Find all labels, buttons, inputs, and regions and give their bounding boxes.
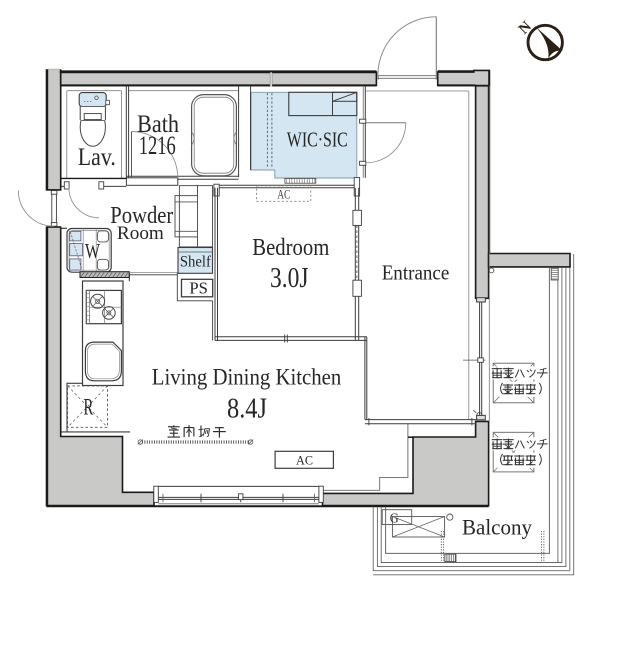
svg-text:Room: Room bbox=[117, 223, 164, 244]
svg-text:WIC·SIC: WIC·SIC bbox=[287, 128, 348, 152]
svg-text:Shelf: Shelf bbox=[180, 254, 212, 271]
svg-text:R: R bbox=[84, 395, 94, 421]
svg-text:Living Dining Kitchen: Living Dining Kitchen bbox=[152, 365, 342, 390]
svg-text:W: W bbox=[85, 239, 100, 263]
svg-text:Bedroom: Bedroom bbox=[252, 235, 329, 261]
svg-text:1216: 1216 bbox=[139, 131, 176, 160]
svg-text:Lav.: Lav. bbox=[78, 144, 116, 171]
svg-text:G: G bbox=[390, 512, 399, 527]
svg-text:AC: AC bbox=[277, 187, 290, 202]
svg-text:Balcony: Balcony bbox=[462, 515, 532, 540]
svg-text:Entrance: Entrance bbox=[382, 261, 450, 285]
svg-text:AC: AC bbox=[296, 452, 313, 467]
svg-text:8.4J: 8.4J bbox=[227, 393, 267, 425]
svg-text:PS: PS bbox=[189, 279, 208, 298]
svg-text:3.0J: 3.0J bbox=[270, 262, 309, 294]
